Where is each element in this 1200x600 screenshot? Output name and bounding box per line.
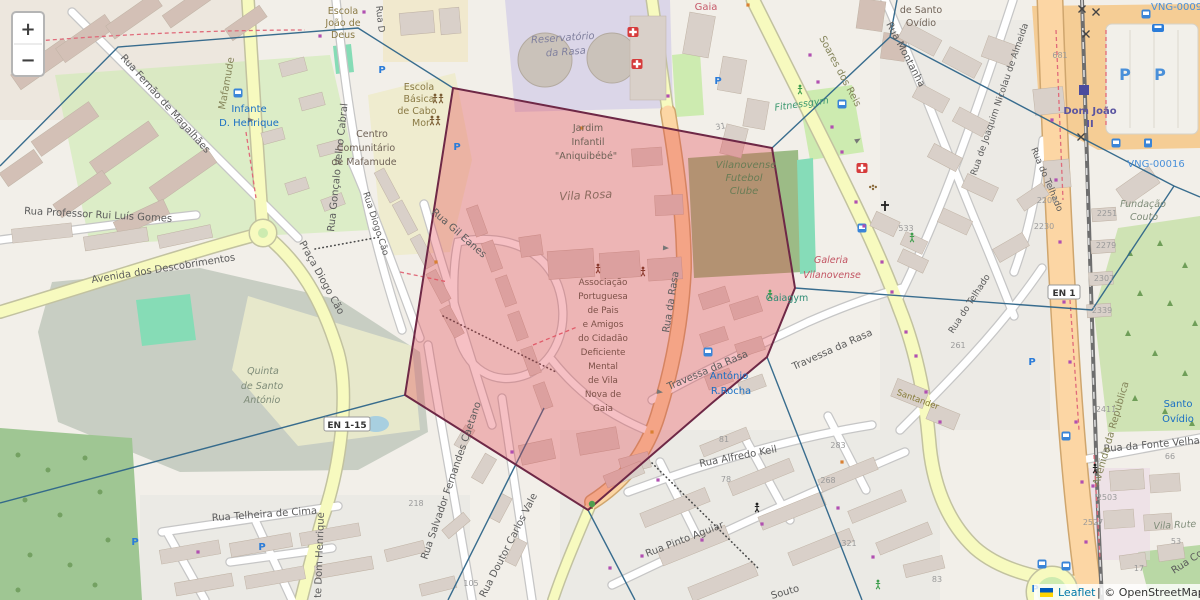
gallery-label: Galeria bbox=[814, 255, 848, 266]
hospital-icon bbox=[857, 163, 868, 173]
house-number: 218 bbox=[408, 499, 423, 508]
tree-crown bbox=[589, 501, 595, 507]
amenity-dot-icon bbox=[650, 430, 653, 433]
tree-icon bbox=[98, 490, 103, 495]
foundation-label: Fundação bbox=[1120, 199, 1166, 210]
hospital-icon bbox=[632, 59, 643, 69]
school-label: Mor bbox=[412, 118, 430, 129]
road-shield: EN 1-15 bbox=[324, 417, 370, 431]
amenity-dot-icon bbox=[434, 260, 437, 263]
roundabout bbox=[254, 224, 272, 242]
shop-dot-icon bbox=[924, 390, 927, 393]
house-number: 83 bbox=[932, 575, 942, 584]
paw-icon bbox=[872, 188, 874, 190]
bus-glyph bbox=[1063, 564, 1069, 568]
bus-glyph bbox=[1039, 562, 1045, 566]
football-club-label: Vilanovense bbox=[716, 160, 777, 171]
runner-head bbox=[440, 94, 443, 97]
ukraine-flag-icon bbox=[1040, 588, 1053, 593]
road-shield-label: EN 1 bbox=[1052, 289, 1075, 299]
tree-icon bbox=[83, 456, 88, 461]
house-number: 268 bbox=[820, 476, 835, 485]
bus-glyph bbox=[1063, 434, 1069, 438]
shop-dot-icon bbox=[1054, 178, 1057, 181]
association-label: Gaia bbox=[593, 404, 613, 414]
paw-icon bbox=[869, 186, 871, 188]
estate-label: Vila Rute bbox=[1153, 519, 1196, 532]
hospital-cross bbox=[858, 167, 866, 169]
kindergarten-label: Infantil bbox=[571, 137, 604, 148]
shop-dot-icon bbox=[816, 80, 819, 83]
parking-icon: P bbox=[258, 542, 265, 553]
landuse-area bbox=[136, 294, 196, 346]
shop-dot-icon bbox=[1084, 540, 1087, 543]
leaflet-attribution-link[interactable]: Leaflet bbox=[1058, 586, 1096, 599]
building bbox=[399, 11, 435, 36]
school-label: Escola bbox=[328, 6, 358, 17]
parking-icon: P bbox=[1119, 65, 1131, 84]
runner-head bbox=[769, 290, 772, 293]
association-label: Nova de bbox=[585, 390, 621, 400]
place-label: Ovídio bbox=[906, 18, 936, 29]
shop-dot-icon bbox=[1058, 240, 1061, 243]
shop-dot-icon bbox=[840, 150, 843, 153]
shop-dot-icon bbox=[836, 506, 839, 509]
shop-dot-icon bbox=[914, 354, 917, 357]
house-number: 2208 bbox=[1037, 196, 1057, 205]
stop-code-label: VNG-00016 bbox=[1127, 159, 1185, 170]
association-label: e Amigos bbox=[583, 320, 624, 330]
house-number: 533 bbox=[898, 224, 913, 233]
bus-stop-icon bbox=[838, 100, 847, 109]
parking-icon: P bbox=[1028, 357, 1035, 368]
metro-station-label: Ovídio bbox=[1162, 413, 1194, 425]
ukraine-flag-icon bbox=[1040, 593, 1053, 598]
zoom-in-hitarea[interactable] bbox=[12, 12, 44, 44]
association-label: Portuguesa bbox=[578, 292, 628, 302]
shop-dot-icon bbox=[871, 555, 874, 558]
parking-icon: P bbox=[1154, 65, 1166, 84]
shop-dot-icon bbox=[1074, 420, 1077, 423]
road-shield-label: EN 1-15 bbox=[327, 421, 366, 431]
tree-icon bbox=[68, 563, 73, 568]
runner-head bbox=[911, 233, 914, 236]
house-number: 2279 bbox=[1096, 241, 1116, 250]
house-number: 681 bbox=[1052, 51, 1067, 60]
place-label: de Santo bbox=[900, 5, 942, 16]
tree-icon bbox=[106, 538, 111, 543]
building bbox=[743, 98, 770, 129]
house-number: 2230 bbox=[1034, 222, 1054, 231]
bus-stop-icon bbox=[1062, 432, 1071, 441]
building bbox=[856, 0, 886, 32]
school-label: Básica bbox=[404, 94, 435, 105]
hospital-cross bbox=[629, 31, 637, 33]
association-label: do Cidadão bbox=[578, 334, 628, 344]
fuel-glyph bbox=[1146, 141, 1150, 144]
house-number: 105 bbox=[463, 579, 478, 588]
tree-icon bbox=[28, 553, 33, 558]
map-canvas[interactable]: PPPPPPPPPRua Fernão de MagalhãesRua Gonç… bbox=[0, 0, 1200, 600]
football-club-label: Futebol bbox=[725, 173, 762, 184]
amenity-dot-icon bbox=[746, 3, 749, 6]
parking-icon: P bbox=[714, 76, 721, 87]
association-label: Mental bbox=[588, 362, 618, 372]
bus-stop-icon bbox=[1062, 562, 1071, 571]
road-shield: EN 1 bbox=[1048, 285, 1080, 299]
tree-icon bbox=[93, 583, 98, 588]
house-number: 81 bbox=[719, 435, 729, 444]
estate-label: Quinta bbox=[247, 366, 279, 377]
kindergarten-label: Jardim bbox=[572, 123, 603, 134]
runner-head bbox=[642, 267, 645, 270]
zoom-out-hitarea[interactable] bbox=[12, 44, 44, 76]
bus-glyph bbox=[839, 102, 845, 106]
bus-stop-icon bbox=[1038, 560, 1047, 569]
community-centre-label: Comunitário bbox=[337, 143, 395, 154]
car-icon bbox=[1152, 24, 1164, 32]
fuel-icon bbox=[1144, 139, 1152, 148]
place-label: Gaia bbox=[695, 2, 718, 13]
shop-dot-icon bbox=[1050, 118, 1053, 121]
landuse-area bbox=[672, 52, 704, 117]
gallery-label: Vilanovense bbox=[803, 270, 861, 281]
bus-stop-icon bbox=[1142, 10, 1151, 19]
shop-dot-icon bbox=[666, 94, 669, 97]
association-label: de Pais bbox=[587, 306, 619, 316]
shop-dot-icon bbox=[904, 330, 907, 333]
shop-dot-icon bbox=[880, 260, 883, 263]
tree-icon bbox=[16, 453, 21, 458]
house-number: 283 bbox=[830, 441, 845, 450]
house-number: 53 bbox=[1171, 537, 1181, 546]
shop-dot-icon bbox=[318, 34, 321, 37]
paw-icon bbox=[872, 185, 874, 187]
tree-icon bbox=[46, 468, 51, 473]
association-label: Associação bbox=[579, 278, 628, 288]
osm-attribution-text[interactable]: | © OpenStreetMap bbox=[1097, 586, 1200, 599]
bus-stop-icon bbox=[1112, 139, 1121, 148]
shop-dot-icon bbox=[890, 290, 893, 293]
house-number: 78 bbox=[721, 475, 731, 484]
shop-dot-icon bbox=[862, 224, 865, 227]
car-glyph bbox=[1155, 26, 1162, 29]
house-number: 2307 bbox=[1094, 274, 1114, 283]
building bbox=[1103, 509, 1134, 529]
transit-stop-label: Infante bbox=[231, 104, 266, 115]
runner-head bbox=[437, 116, 440, 119]
association-label: Deficiente bbox=[581, 348, 626, 358]
school-label: de Cabo bbox=[397, 106, 436, 117]
house-number: 321 bbox=[841, 539, 856, 548]
house-number: 66 bbox=[1165, 452, 1175, 461]
bus-stop-icon bbox=[704, 348, 713, 357]
shop-dot-icon bbox=[938, 420, 941, 423]
house-number: 2251 bbox=[1097, 209, 1117, 218]
runner-head bbox=[756, 503, 759, 506]
football-club-label: Clube bbox=[730, 186, 759, 197]
transit-stop-label: D. Henrique bbox=[219, 118, 279, 129]
shop-dot-icon bbox=[196, 550, 199, 553]
neighbourhood-label: Vila Rosa bbox=[559, 187, 613, 204]
runner-head bbox=[877, 580, 880, 583]
shop-dot-icon bbox=[640, 554, 643, 557]
estate-label: de Santo bbox=[241, 381, 283, 392]
community-centre-label: Centro bbox=[356, 129, 388, 140]
metro-station-label: Santo bbox=[1164, 399, 1193, 410]
building bbox=[1149, 473, 1180, 493]
house-number: 31 bbox=[715, 121, 727, 132]
shop-dot-icon bbox=[510, 450, 513, 453]
landuse-area bbox=[0, 428, 142, 600]
tree-icon bbox=[58, 513, 63, 518]
bus-glyph bbox=[1113, 141, 1119, 145]
hospital-cross bbox=[633, 63, 641, 65]
amenity-dot-icon bbox=[840, 460, 843, 463]
bus-glyph bbox=[235, 91, 241, 95]
shop-dot-icon bbox=[1062, 300, 1065, 303]
shop-dot-icon bbox=[854, 200, 857, 203]
metro-station-label: II bbox=[1086, 119, 1093, 130]
school-label: Escola bbox=[404, 82, 434, 93]
bus-glyph bbox=[1143, 12, 1149, 16]
metro-station-icon bbox=[1079, 85, 1089, 95]
runner-head bbox=[597, 264, 600, 267]
community-centre-label: de Mafamude bbox=[331, 157, 396, 168]
parking-icon: P bbox=[378, 65, 385, 76]
shop-dot-icon bbox=[608, 566, 611, 569]
hospital-icon bbox=[628, 27, 639, 37]
estate-label: António bbox=[243, 395, 281, 406]
foundation-label: Couto bbox=[1130, 212, 1158, 223]
parking-icon: P bbox=[453, 142, 460, 153]
gym-label: Gaiagym bbox=[766, 293, 809, 304]
runner-head bbox=[799, 85, 802, 88]
stop-code-label: VNG-0009 bbox=[1151, 2, 1200, 13]
association-label: de Vila bbox=[588, 376, 618, 386]
kindergarten-label: "Aniquibébé" bbox=[555, 151, 617, 162]
school-label: João de bbox=[324, 18, 360, 29]
house-number: 261 bbox=[950, 341, 965, 350]
building bbox=[1109, 469, 1144, 491]
shop-dot-icon bbox=[362, 10, 365, 13]
transit-stop-label: R.Rocha bbox=[711, 386, 751, 397]
transit-stop-label: António bbox=[710, 370, 748, 382]
shop-dot-icon bbox=[1080, 480, 1083, 483]
paw-icon bbox=[875, 186, 877, 188]
house-number: 2411 bbox=[1096, 405, 1116, 414]
shop-dot-icon bbox=[760, 522, 763, 525]
school-label: Deus bbox=[331, 30, 355, 41]
tree-icon bbox=[16, 588, 21, 593]
bus-glyph bbox=[705, 350, 711, 354]
house-number: 17 bbox=[1134, 564, 1144, 573]
house-number: 2503 bbox=[1097, 493, 1117, 502]
house-number: 2339 bbox=[1092, 306, 1112, 315]
shop-dot-icon bbox=[1068, 360, 1071, 363]
building bbox=[439, 7, 461, 35]
metro-station-label: Dom João bbox=[1063, 106, 1116, 117]
tree-icon bbox=[23, 498, 28, 503]
bus-stop-icon bbox=[234, 89, 243, 98]
shop-dot-icon bbox=[656, 478, 659, 481]
shop-dot-icon bbox=[808, 53, 811, 56]
parking-icon: P bbox=[131, 537, 138, 548]
building bbox=[1033, 87, 1066, 116]
shop-dot-icon bbox=[830, 125, 833, 128]
house-number: 2527 bbox=[1083, 518, 1103, 527]
